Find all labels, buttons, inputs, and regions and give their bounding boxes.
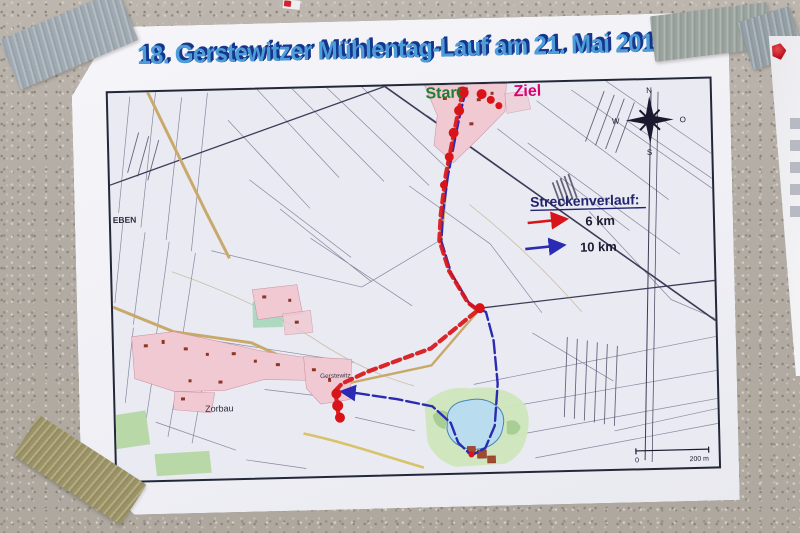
poster-title: 18. Gerstewitzer Mühlentag-Lauf am 21. M… (98, 27, 705, 72)
scale-distance-label: 200 m (689, 456, 709, 463)
compass-w-label: W (612, 117, 620, 126)
small-scrap (283, 0, 301, 10)
villages (126, 83, 538, 415)
parcel-lines (110, 79, 719, 474)
red-dot-icon (284, 0, 292, 7)
scale-zero-label: 0 (635, 457, 639, 464)
legend-10km-arrow-icon (525, 245, 563, 249)
legend-6km-label: 6 km (585, 213, 615, 229)
place-label-eben: EBEN (113, 215, 137, 226)
photo-scene: 18. Gerstewitzer Mühlentag-Lauf am 21. M… (0, 0, 800, 533)
event-poster: 18. Gerstewitzer Mühlentag-Lauf am 21. M… (70, 12, 740, 516)
main-roads (108, 79, 719, 476)
start-label: Start (425, 85, 462, 103)
compass-s-label: S (647, 148, 653, 157)
place-label-zorbau: Zorbau (205, 403, 234, 414)
compass-e-label: O (680, 115, 686, 124)
scale-bar: 0 200 m (635, 447, 709, 465)
course-map: Start Ziel EBEN Zorbau Gerstewitz Streck… (106, 76, 721, 483)
legend-10km-label: 10 km (580, 239, 617, 255)
side-sheet-bars (790, 118, 800, 217)
place-label-gerstewitz: Gerstewitz (320, 372, 351, 380)
side-sheet (766, 36, 800, 376)
red-marker-icon (769, 41, 787, 60)
ziel-label: Ziel (513, 83, 541, 101)
legend-heading: Streckenverlauf: (530, 191, 640, 210)
legend-6km-arrow-icon (528, 219, 566, 223)
map-svg: Start Ziel EBEN Zorbau Gerstewitz Streck… (108, 79, 719, 482)
legend: Streckenverlauf: 6 km 10 km (524, 191, 647, 256)
compass-rose-icon: N O S W (611, 85, 687, 158)
compass-n-label: N (646, 86, 652, 95)
